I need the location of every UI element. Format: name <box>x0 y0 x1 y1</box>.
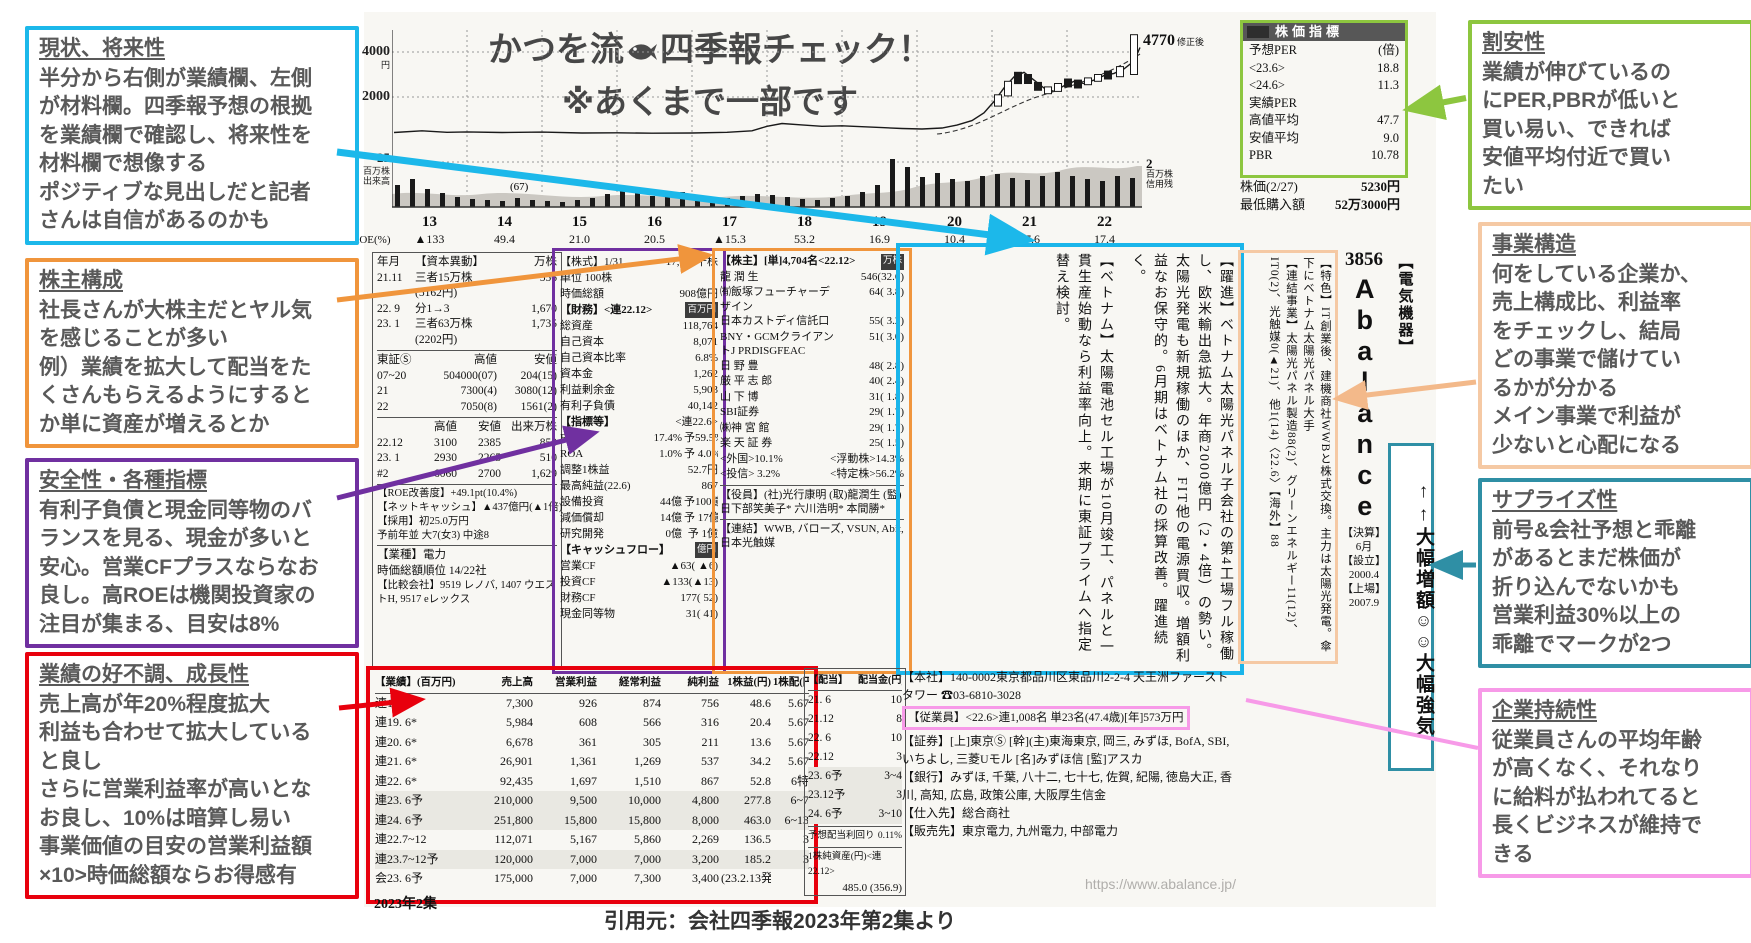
listed-value: 2007.9 <box>1336 596 1392 610</box>
annotation-body: 半分から右側が業績欄、左側 が材料欄。四季報予想の根拠 を業績欄で確認し、将来性… <box>39 65 345 236</box>
table-row: 20 <box>917 214 992 231</box>
table-cell: 7,300 <box>599 869 661 889</box>
annotation-body: 有利子負債と現金同等物のバ ランスを見る、現金が多いと 安心。営業CFプラスなら… <box>39 497 345 640</box>
table-row: 現金同等物31( 41) <box>560 606 718 622</box>
annotation-shareholder-structure: 株主構成 社長さんが大株主だとヤル気 を感じることが多い 例）業績を拡大して配当… <box>25 258 359 448</box>
yield-label: 予想配当利回り <box>808 829 876 845</box>
table-cell: 463.0 <box>721 811 771 831</box>
table-cell: 18 <box>797 214 812 230</box>
table-cell: 8,000 <box>663 811 719 831</box>
table-cell: 22.12 <box>808 748 856 767</box>
table-cell: 予想PER <box>1249 42 1349 60</box>
table-cell: 1,510 <box>599 772 661 792</box>
annotation-body: 前号&会社予想と乖離 があるとまだ株価が 折り込んでないかも 営業利益30%以上… <box>1492 517 1740 660</box>
annotation-undervaluation: 割安性 業績が伸びているの にPER,PBRが低いと 買い易い、できれば 安値平… <box>1468 20 1751 210</box>
table-row: 21. 610 <box>808 691 902 710</box>
table-cell: 23.12予 <box>808 786 856 805</box>
annotation-current-future: 現状、将来性 半分から右側が業績欄、左側 が材料欄。四季報予想の根拠 を業績欄で… <box>25 26 359 245</box>
table-cell: 2385 <box>459 436 501 452</box>
table-cell: 210,000 <box>463 791 533 811</box>
company-name: Abalance <box>1356 272 1372 524</box>
table-cell: 8 <box>858 710 902 729</box>
table-cell: 251,800 <box>463 811 533 831</box>
table-cell: 営業CF <box>560 558 636 574</box>
table-cell: 財務CF <box>560 590 636 606</box>
table-cell: 22 <box>377 400 421 416</box>
table-cell: 1,629 <box>503 467 557 483</box>
table-row: 連22.7~12112,0715,1675,8602,269136.53 <box>375 830 809 850</box>
table-cell: 51( 3.0) <box>842 330 904 359</box>
table-cell: 7,300 <box>463 694 533 714</box>
annotation-heading: 現状、将来性 <box>39 35 345 64</box>
table-cell: 連22.7~12 <box>375 830 461 850</box>
table-cell: 現金同等物 <box>560 606 636 622</box>
table-cell: 21. 6 <box>808 691 856 710</box>
table-row: 21.0 <box>542 232 617 247</box>
peer-companies: 【比較会社】9519 レノバ, 1407 ウエストH, 9517 eレックス <box>377 579 557 607</box>
table-cell: PBR <box>1249 147 1349 165</box>
table-cell: 874 <box>599 694 661 714</box>
table-cell: 8,071 <box>652 334 718 350</box>
table-row: 【配当】配当金(円) <box>808 671 902 691</box>
yearly-price-table: 東証Ⓢ高値安値07~20504000(07)204(15)217300(4)30… <box>377 350 557 415</box>
table-cell: 17.4% <box>638 430 682 446</box>
table-cell: 22.12 <box>377 436 413 452</box>
table-cell: 厳 平 志 郎 <box>720 374 840 390</box>
table-row: (2202円) <box>377 333 557 349</box>
table-row: 営業CF▲63( ▲6) <box>560 558 718 574</box>
edition-label: 2023年2集 <box>374 893 437 913</box>
table-row: 22. 9分1→31,670 <box>377 302 557 318</box>
table-cell: 10.78 <box>1351 147 1399 165</box>
table-row: (5162円) <box>377 286 557 302</box>
cashflow-table: 営業CF▲63( ▲6)投資CF▲133(▲13)財務CF177( 52)現金同… <box>560 558 718 622</box>
shareholders-header: 【株主】[単]4,704名<22.12> <box>720 254 879 270</box>
table-row: 楽 天 証 券25( 1.5) <box>720 436 904 452</box>
table-cell: 高値 <box>423 353 497 369</box>
monthly-price-table: 高値安値出来万株22.123100238585023. 129302265510… <box>377 417 557 482</box>
table-cell: 118,764 <box>652 318 718 334</box>
table-cell: 1561(2) <box>499 400 557 416</box>
market-cap-rank: 時価総額順位 14/22社 <box>377 564 557 580</box>
table-row: 連22. 6*92,4351,6971,51086752.86特 <box>375 772 809 792</box>
table-cell: 14億 <box>638 510 682 526</box>
table-row: 21.11三者15万株556 <box>377 271 557 287</box>
employees-box: 【従業員】<22.6>連1,008名 単23名(47.4歳)[年]573万円 <box>902 706 1190 730</box>
table-cell: 2700 <box>459 467 501 483</box>
company-url[interactable]: https://www.abalance.jp/ <box>990 876 1236 892</box>
table-cell: 10 <box>858 729 902 748</box>
customers-line: 【販売先】東京電力, 九州電力, 中部電力 <box>902 822 1238 840</box>
bps-value: 485.0 <box>842 882 867 894</box>
table-cell: 営業利益 <box>535 673 597 693</box>
table-cell: 東証Ⓢ <box>377 353 421 369</box>
table-row: 19 <box>842 214 917 231</box>
table-cell: 経常利益 <box>599 673 661 693</box>
table-cell: 安値 <box>499 353 557 369</box>
table-cell: 楽 天 証 券 <box>720 436 840 452</box>
table-cell: 出来万株 <box>503 420 557 436</box>
table-cell: 23. 6予 <box>808 767 856 786</box>
table-cell: 2265 <box>459 451 501 467</box>
dividend-table: 【配当】配当金(円)21. 61021.12822. 61022.12323. … <box>808 671 902 824</box>
table-row: 53.2 <box>767 232 842 247</box>
shareholders-table: 龍 潤 生546(32.6)㈲飯塚フューチャーデザイン64( 3.8)日本カスト… <box>720 270 904 452</box>
table-cell: 49.4 <box>494 232 515 246</box>
headquarters-line: 【本社】140-0002東京都品川区東品川2-2-4 天王洲ファーストタワー ☎… <box>902 668 1238 704</box>
annotation-body: 社長さんが大株主だとヤル気 を感じることが多い 例）業績を拡大して配当をた くさ… <box>39 297 345 440</box>
table-cell: 龍 潤 生 <box>720 270 840 286</box>
company-info: 【本社】140-0002東京都品川区東品川2-2-4 天王洲ファーストタワー ☎… <box>902 668 1238 840</box>
y-axis-tick-2000: 2000 <box>356 89 390 105</box>
table-cell: 17 <box>722 214 737 230</box>
table-cell: 安値 <box>459 420 501 436</box>
table-cell <box>377 333 413 349</box>
table-cell: 連22. 6* <box>375 772 461 792</box>
table-cell: 6.8% <box>652 350 718 366</box>
table-row: 21.128 <box>808 710 902 729</box>
dividend-column: 【配当】配当金(円)21. 61021.12822. 61022.12323. … <box>804 668 906 896</box>
table-row: <24.6>11.3 <box>1249 77 1399 95</box>
table-cell: 連24. 6予 <box>375 811 461 831</box>
table-cell: 1,269 <box>599 752 661 772</box>
annotation-business-structure: 事業構造 何をしている企業か、 売上構成比、利益率 をチェックし、結局 どの事業… <box>1478 222 1751 469</box>
annotation-body: 従業員さんの平均年齢 が高くなく、それなり に給料が払われてると 長くビジネスが… <box>1492 727 1740 870</box>
table-cell: 日 野 豊 <box>720 359 840 375</box>
table-row: 22 <box>1067 214 1142 231</box>
performance-table: 【業績】(百万円)売上高営業利益経常利益純利益1株益(円)1株配(円)連18. … <box>375 673 809 889</box>
table-cell: 92,435 <box>463 772 533 792</box>
table-cell: 3100 <box>415 436 457 452</box>
employees-line: 【従業員】<22.6>連1,008名 単23名(47.4歳)[年]573万円 <box>908 712 1184 724</box>
performance-box: 【業績】(百万円)売上高営業利益経常利益純利益1株益(円)1株配(円)連18. … <box>366 666 818 904</box>
table-cell: 204(15) <box>499 369 557 385</box>
finance-header: 【財務】<連22.12> <box>560 302 683 318</box>
table-cell: 47.7 <box>1351 112 1399 130</box>
table-cell: 23. 1 <box>377 451 413 467</box>
table-cell: 連21. 6* <box>375 752 461 772</box>
annotation-heading: 割安性 <box>1482 29 1740 58</box>
peak-price-label: 4770修正後 <box>1143 32 1204 50</box>
table-cell: 26,901 <box>463 752 533 772</box>
surprise-label-2: 大幅強気 <box>1413 653 1434 737</box>
table-cell: ▲133(▲13) <box>638 574 718 590</box>
table-cell: 自己資本 <box>560 334 650 350</box>
table-row: 高値平均47.7 <box>1249 112 1399 130</box>
table-cell: 1株益(円) <box>721 673 771 693</box>
table-cell: 177( 52) <box>638 590 718 606</box>
table-cell: 連23.7~12予 <box>375 850 461 870</box>
min-purchase-value: 52万3000円 <box>1335 196 1400 214</box>
table-cell: <24.6> <box>1249 77 1349 95</box>
table-cell: <外国>10.1% <box>720 452 811 468</box>
table-row: 高値安値出来万株 <box>377 420 557 436</box>
table-row: 自己資本8,071 <box>560 334 718 350</box>
annotation-heading: 株主構成 <box>39 267 345 296</box>
feature-column-box: 【特色】IT創業後、建機商社WWBと株式交換。主力は太陽光発電。傘下にベトナム太… <box>1238 250 1338 664</box>
annotation-performance-growth: 業績の好不調、成長性 売上高が年20%程度拡大 利益も合わせて拡大している と良… <box>25 652 359 899</box>
founded-value: 2000.4 <box>1336 568 1392 582</box>
table-cell: 7300(4) <box>423 384 497 400</box>
table-row: 23.12予3 <box>808 786 902 805</box>
table-cell: 年月 <box>377 255 413 271</box>
table-cell: 連19. 6* <box>375 713 461 733</box>
table-cell: 連18. 6* <box>375 694 461 714</box>
table-cell: 7,000 <box>535 850 597 870</box>
annotation-safety-indicators: 安全性・各種指標 有利子負債と現金同等物のバ ランスを見る、現金が多いと 安心。… <box>25 458 359 648</box>
table-cell: 会23. 6予 <box>375 869 461 889</box>
table-cell: 三者63万株 <box>415 317 513 333</box>
table-row: ㈱神 宮 館29( 1.7) <box>720 421 904 437</box>
table-row: 厳 平 志 郎40( 2.4) <box>720 374 904 390</box>
table-cell: 三者15万株 <box>415 271 513 287</box>
table-row: 安値平均9.0 <box>1249 130 1399 148</box>
industry-label: 【電気機器】 <box>1396 254 1412 374</box>
table-cell: (23.2.13発表) <box>721 869 771 889</box>
annotation-heading: 事業構造 <box>1492 231 1740 260</box>
table-cell: 6,678 <box>463 733 533 753</box>
table-cell: 14 <box>497 214 512 230</box>
table-cell: 850 <box>503 436 557 452</box>
surprise-strip-box: ↑↑大幅増額☺☺大幅強気 <box>1388 443 1434 771</box>
table-row: 【ROE改善度】+49.1pt(10.4%) <box>377 487 557 501</box>
table-cell <box>1351 95 1399 113</box>
table-row: 会23. 6予175,0007,0007,3003,400(23.2.13発表) <box>375 869 809 889</box>
indicators-box-header: 株価指標 <box>1243 23 1405 41</box>
table-cell <box>638 478 682 494</box>
table-row: 17 <box>692 214 767 231</box>
table-row: 24. 6予3~10 <box>808 805 902 824</box>
table-row: ▲15.3 <box>692 232 767 247</box>
table-row: 【ネットキャッシュ】▲437億円(▲1倍) <box>377 501 557 515</box>
table-cell: ㈱神 宮 館 <box>720 421 840 437</box>
table-cell: 資本金 <box>560 366 650 382</box>
table-row: 調整1株益52.7円 <box>560 462 718 478</box>
table-cell: ROA <box>560 446 636 462</box>
up-arrows-icon: ↑↑ <box>1413 481 1434 527</box>
table-cell: 連20. 6* <box>375 733 461 753</box>
table-cell: 22. 9 <box>377 302 413 318</box>
table-cell: 3080(12) <box>499 384 557 400</box>
table-cell: <浮動株>14.3% <box>813 452 904 468</box>
securities-line: 【証券】[上]東京Ⓢ [幹](主)東海東京, 岡三, みずほ, BofA, SB… <box>902 732 1238 768</box>
table-cell: 10,000 <box>599 791 661 811</box>
officers-line: 【役員】(社)光行康明 (取)龍潤生 (監)日下部笑美子* 六川浩明* 本間勝* <box>720 485 904 517</box>
table-cell: 総資産 <box>560 318 650 334</box>
table-cell: 減価償却 <box>560 510 636 526</box>
capital-column: 年月【資本異動】万株21.11三者15万株556(5162円)22. 9分1→3… <box>372 252 562 670</box>
table-cell: 10 <box>858 691 902 710</box>
table-cell: #2 <box>377 467 413 483</box>
material-column-box: 【躍進】ベトナム太陽光パネル子会社の第4工場フル稼働し、欧米輸出急拡大。年商20… <box>896 243 1244 675</box>
table-row: 自己資本比率6.8% <box>560 350 718 366</box>
cashflow-header: 【キャッシュフロー】 <box>560 542 693 558</box>
table-cell: 13.6 <box>721 733 771 753</box>
table-cell <box>377 286 413 302</box>
table-cell: 3,400 <box>663 869 719 889</box>
shares-head: 【株式】1/3117,361千株単位 100株時価総額908億円 <box>560 254 718 302</box>
table-row: 連21. 6*26,9011,3611,26953734.25.67 <box>375 752 809 772</box>
table-cell: 136.5 <box>721 830 771 850</box>
table-cell: 1,262 <box>652 366 718 382</box>
table-cell: 有利子負債 <box>560 398 650 414</box>
group-companies-line: 【連結】WWB, バローズ, VSUN, Abit, 日本光触媒 <box>720 519 904 551</box>
annotation-body: 何をしている企業か、 売上構成比、利益率 をチェックし、結局 どの事業で儲けてい… <box>1492 261 1740 461</box>
table-cell: 40( 2.4) <box>842 374 904 390</box>
table-row: 22.1231002385850 <box>377 436 557 452</box>
table-cell: 16.9 <box>869 232 890 246</box>
table-cell: 22 <box>1097 214 1112 230</box>
table-cell: 利益剰余金 <box>560 382 650 398</box>
table-row: 龍 潤 生546(32.6) <box>720 270 904 286</box>
table-row: <23.6>18.8 <box>1249 60 1399 78</box>
table-cell: 【配当】 <box>808 671 856 690</box>
table-row: 【業績】(百万円)売上高営業利益経常利益純利益1株益(円)1株配(円) <box>375 673 809 694</box>
table-cell: (5162円) <box>415 286 513 302</box>
indicators-header: 【指標等】 <box>560 414 673 430</box>
founded-label: 【設立】 <box>1336 554 1392 568</box>
table-cell: (2202円) <box>415 333 513 349</box>
table-cell: ▲15.3 <box>713 232 746 246</box>
code-strip: 3856 Abalance 【決算】 6月 【設立】 2000.4 【上場】 2… <box>1336 252 1392 672</box>
table-cell: 1,361 <box>535 752 597 772</box>
table-cell: 【資本異動】 <box>415 255 513 271</box>
table-cell: 5,984 <box>463 713 533 733</box>
table-cell: 756 <box>663 694 719 714</box>
table-cell: 20 <box>947 214 962 230</box>
table-cell: 3~4 <box>858 767 902 786</box>
table-row: 15 <box>542 214 617 231</box>
finance-column-box: 【株式】1/3117,361千株単位 100株時価総額908億円 【財務】<連2… <box>552 248 726 674</box>
table-cell: 361 <box>535 733 597 753</box>
table-row: 23. 6予3~4 <box>808 767 902 786</box>
table-cell: 日本カストディ信託口 <box>720 314 840 330</box>
table-cell <box>377 420 413 436</box>
stock-price-chart: (67) <box>392 22 1142 212</box>
table-cell: 23. 1 <box>377 317 413 333</box>
table-row: 22.123 <box>808 748 902 767</box>
table-cell: 7050(8) <box>423 400 497 416</box>
table-row: 07~20504000(07)204(15) <box>377 369 557 385</box>
table-row: 予前年並 大7(女3) 中途8 <box>377 529 557 543</box>
table-cell: ROE <box>560 430 636 446</box>
table-row: 日 野 豊48( 2.8) <box>720 359 904 375</box>
table-cell: 52.8 <box>721 772 771 792</box>
table-cell: 316 <box>663 713 719 733</box>
table-cell: 5,903 <box>652 382 718 398</box>
table-cell: 21 <box>1022 214 1037 230</box>
table-row: 日本カストディ信託口55( 3.2) <box>720 314 904 330</box>
annotation-body: 業績が伸びているの にPER,PBRが低いと 買い易い、できれば 安値平均付近で… <box>1482 59 1740 202</box>
table-cell: 4,800 <box>663 791 719 811</box>
table-cell: 48.6 <box>721 694 771 714</box>
table-cell: 7,000 <box>535 869 597 889</box>
table-cell: 3 <box>858 786 902 805</box>
annotation-surprise: サプライズ性 前号&会社予想と乖離 があるとまだ株価が 折り込んでないかも 営業… <box>1478 478 1751 668</box>
table-cell: 175,000 <box>463 869 533 889</box>
sector-line: 【業種】電力 <box>377 545 557 564</box>
material-article-yakushin: 【躍進】ベトナム太陽光パネル子会社の第4工場フル稼働し、欧米輸出急拡大。年商20… <box>1126 253 1236 665</box>
table-row: 減価償却14億予 17億 <box>560 510 718 526</box>
table-row: 時価総額908億円 <box>560 286 718 302</box>
table-cell: 1,697 <box>535 772 597 792</box>
table-cell: 305 <box>599 733 661 753</box>
candlesticks <box>995 35 1138 106</box>
table-row: 連24. 6予251,80015,80015,8008,000463.06~13 <box>375 811 809 831</box>
source-caption: 引用元：会社四季報2023年第2集より <box>480 905 1080 935</box>
table-cell: ▲63( ▲6) <box>638 558 718 574</box>
table-cell: 3~10 <box>858 805 902 824</box>
table-cell: 2930 <box>415 451 457 467</box>
table-cell: 20.4 <box>721 713 771 733</box>
table-cell: 【ネットキャッシュ】▲437億円(▲1倍) <box>377 502 562 513</box>
table-cell: 9,500 <box>535 791 597 811</box>
table-cell: 設備投資 <box>560 494 636 510</box>
table-row: 18 <box>767 214 842 231</box>
capital-table: 年月【資本異動】万株21.11三者15万株556(5162円)22. 9分1→3… <box>377 255 557 348</box>
table-row: ▲133 <box>392 232 467 247</box>
table-cell: 予前年並 大7(女3) 中途8 <box>377 530 489 541</box>
table-row: 49.4 <box>467 232 542 247</box>
table-row: 連23. 6予210,0009,50010,0004,800277.86~7 <box>375 791 809 811</box>
annotation-heading: 業績の好不調、成長性 <box>39 661 345 690</box>
table-cell: 53.2 <box>794 232 815 246</box>
table-row: 最高純益(22.6)867 <box>560 478 718 494</box>
table-cell: 546(32.6) <box>842 270 904 286</box>
table-row: 財務CF177( 52) <box>560 590 718 606</box>
table-row: <外国>10.1%<浮動株>14.3% <box>720 452 904 468</box>
table-cell: BNY・GCMクライアントJ PRDISGFEAC <box>720 330 840 359</box>
table-row: 連19. 6*5,98460856631620.45.67 <box>375 713 809 733</box>
table-cell <box>652 270 718 286</box>
table-cell: 19 <box>872 214 887 230</box>
table-cell: 120,000 <box>463 850 533 870</box>
table-cell: 11.3 <box>1351 77 1399 95</box>
table-cell: <投信> 3.2% <box>720 467 811 483</box>
table-row: ROA1.0%予 4.0% <box>560 446 718 462</box>
chart-note: (67) <box>510 181 529 193</box>
table-cell: ㈲飯塚フューチャーデザイン <box>720 285 840 314</box>
surprise-label-1: 大幅増額 <box>1413 527 1434 611</box>
table-row: 連23.7~12予120,0007,0007,0003,200185.23 <box>375 850 809 870</box>
table-cell: 29( 1.7) <box>842 421 904 437</box>
table-cell: 21 <box>377 384 421 400</box>
table-row: SBI証券29( 1.7) <box>720 405 904 421</box>
banks-line: 【銀行】みずほ, 千葉, 八十二, 七十七, 佐賀, 紀陽, 徳島大正, 香川,… <box>902 768 1238 804</box>
table-cell: 34.2 <box>721 752 771 772</box>
table-row: 14 <box>467 214 542 231</box>
table-cell: 31( 1.8) <box>842 390 904 406</box>
table-cell: 112,071 <box>463 830 533 850</box>
table-cell: 売上高 <box>463 673 533 693</box>
bps-label: 1株純資産(円)<連22.12> <box>808 847 902 881</box>
feature-text: 【特色】IT創業後、建機商社WWBと株式交換。主力は太陽光発電。傘下にベトナム太… <box>1299 257 1333 657</box>
table-row: 山 下 博31( 1.8) <box>720 390 904 406</box>
table-cell: 867 <box>663 772 719 792</box>
table-cell: ▲133 <box>415 232 445 246</box>
table-row: ROE17.4%予59.5% <box>560 430 718 446</box>
table-cell: 5,167 <box>535 830 597 850</box>
table-row: 設備投資44億予100億 <box>560 494 718 510</box>
table-row: 23. 1三者63万株1,735 <box>377 317 557 333</box>
table-cell: 15 <box>572 214 587 230</box>
table-cell: 29( 1.7) <box>842 405 904 421</box>
table-row: 22. 610 <box>808 729 902 748</box>
table-row: 16 <box>617 214 692 231</box>
finance-table: 総資産118,764自己資本8,071自己資本比率6.8%資本金1,262利益剰… <box>560 318 718 414</box>
table-cell: 277.8 <box>721 791 771 811</box>
table-cell: 1,670 <box>515 302 557 318</box>
